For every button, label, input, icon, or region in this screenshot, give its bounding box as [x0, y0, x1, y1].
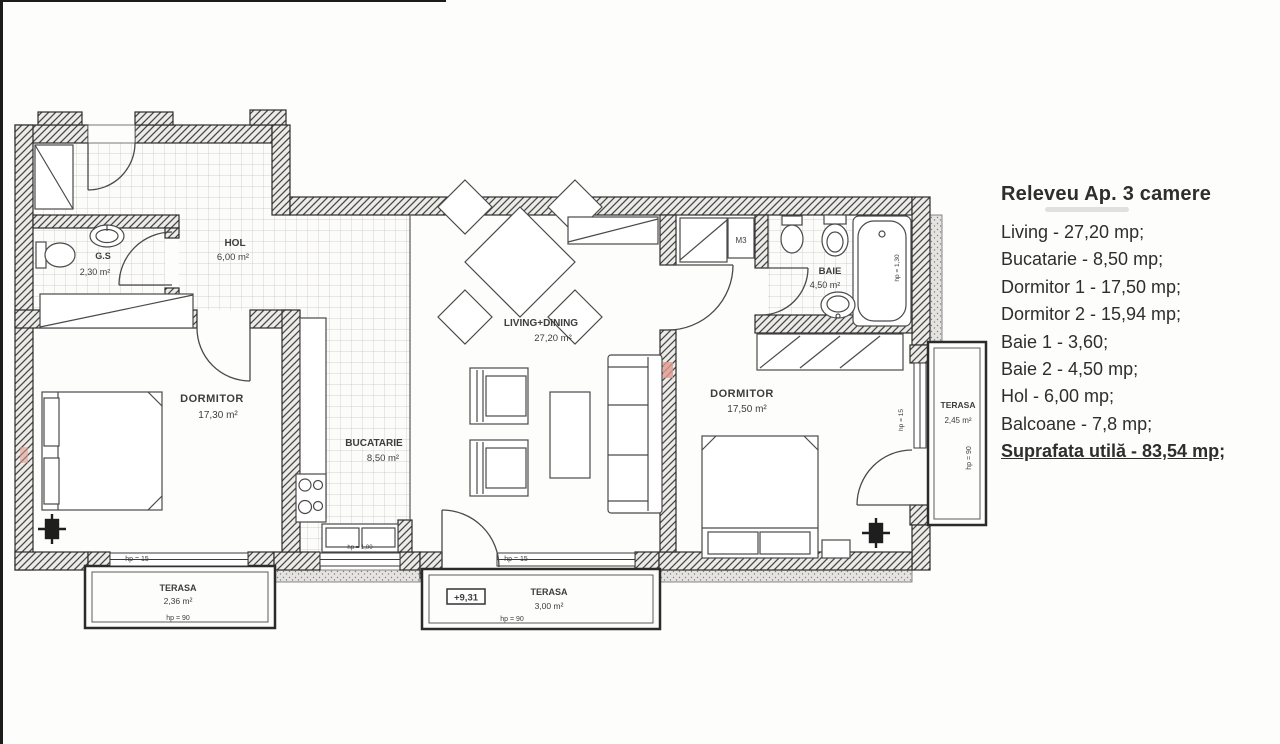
- annotation-hp90-terasa-right: hp = 90: [966, 446, 973, 470]
- wall-left: [15, 125, 33, 570]
- baie-bathtub: [853, 216, 911, 326]
- wall-step: [272, 125, 290, 215]
- door-living-terasa: [442, 510, 499, 567]
- wardrobe-dormitor2: [757, 334, 903, 370]
- red-marker-1: [663, 362, 673, 378]
- room-area-gs: 2,30 m²: [80, 267, 111, 277]
- room-label-terasa-right: TERASA: [941, 400, 976, 410]
- annotation-m3: M3: [735, 236, 747, 245]
- dining-table: [465, 207, 575, 317]
- hol-floor-2: [272, 215, 410, 310]
- baie-bidet: [781, 216, 803, 253]
- room-area-dormitor2: 17,50 m²: [727, 404, 767, 415]
- door-dormitor2: [668, 265, 733, 330]
- room-label-dormitor1: DORMITOR: [180, 393, 244, 405]
- wall-baie-left-stub: [755, 215, 768, 268]
- wall-pillar-2: [135, 112, 173, 125]
- legend-item-baie2: Baie 2 - 4,50 mp;: [1001, 356, 1279, 383]
- baie-toilet: [822, 215, 848, 256]
- wall-bottom-b: [274, 552, 320, 570]
- room-area-terasa-center: 3,00 m²: [535, 601, 564, 611]
- bed-dormitor2: [702, 436, 818, 558]
- gs-sink: [90, 225, 124, 247]
- wall-top-left-b: [135, 125, 272, 143]
- wardrobe-dormitor1: [40, 294, 193, 328]
- window-kitchen: [320, 553, 400, 566]
- annotation-hp90-terasa-center: hp = 90: [500, 616, 524, 623]
- scanned-floor-plan-page: HOL 6,00 m² G.S 2,30 m² DORMITOR 17,30 m…: [0, 0, 1280, 744]
- terraces: [85, 342, 986, 629]
- room-area-terasa-right: 2,45 m²: [944, 416, 971, 425]
- wall-bottom-c: [400, 552, 420, 570]
- legend-item-bucatarie: Bucatarie - 8,50 mp;: [1001, 246, 1279, 273]
- room-area-hol: 6,00 m²: [217, 252, 249, 263]
- scan-smudge: [1045, 207, 1129, 212]
- area-legend: Releveu Ap. 3 camere Living - 27,20 mp; …: [1001, 183, 1279, 466]
- wardrobe-living: [568, 217, 658, 244]
- annotation-hp15-dormitor1: hp = 15: [125, 556, 149, 563]
- room-label-dormitor2: DORMITOR: [710, 388, 774, 400]
- wall-kitchen-stub: [398, 520, 412, 552]
- room-area-terasa-left: 2,36 m²: [164, 596, 193, 606]
- legend-title: Releveu Ap. 3 camere: [1001, 183, 1279, 206]
- red-marker-2: [20, 447, 28, 463]
- kitchen-stove: [296, 474, 326, 522]
- wall-living-dormitor2-stub: [660, 215, 676, 265]
- annotation-hp130-baie: hp = 1,30: [894, 254, 901, 282]
- wall-right-upper: [912, 197, 930, 345]
- annotation-hp15-living: hp = 15: [504, 556, 528, 563]
- room-label-terasa-center: TERASA: [530, 587, 568, 597]
- room-label-terasa-left: TERASA: [159, 583, 197, 593]
- room-area-dormitor1: 17,30 m²: [198, 410, 238, 421]
- wall-right-bottom: [912, 525, 930, 570]
- legend-item-living: Living - 27,20 mp;: [1001, 219, 1279, 246]
- closet-entry: [35, 145, 73, 209]
- radiator-dormitor2: [862, 518, 890, 548]
- room-area-bucatarie: 8,50 m²: [367, 453, 399, 464]
- coffee-table: [550, 392, 590, 478]
- door-dormitor2-terasa: [857, 450, 912, 505]
- hol-floor: [179, 143, 272, 310]
- annotation-hp100-kitchen: hp = 1,00: [347, 545, 373, 551]
- annotation-hp15-dormitor2: hp = 15: [898, 409, 905, 431]
- room-label-hol: HOL: [224, 238, 245, 249]
- window-dormitor2-terasa: [914, 363, 926, 448]
- bed-dormitor1: [42, 392, 162, 510]
- room-label-gs: G.S: [95, 251, 111, 261]
- room-label-bucatarie: BUCATARIE: [345, 438, 403, 449]
- wall-bottom-a: [15, 552, 88, 570]
- armchair-1: [470, 368, 528, 424]
- baie-sink: [821, 292, 855, 318]
- room-area-living: 27,20 m²: [534, 333, 572, 344]
- radiator-dormitor1: [38, 514, 66, 544]
- gs-toilet: [36, 242, 75, 268]
- room-label-baie: BAIE: [819, 266, 842, 277]
- room-area-baie: 4,50 m²: [810, 280, 841, 290]
- armchair-2: [470, 440, 528, 496]
- wall-gs-right-a: [165, 228, 179, 238]
- legend-total: Suprafata utilă - 83,54 mp;: [1001, 438, 1279, 465]
- scan-edge-left: [0, 0, 3, 744]
- legend-item-hol: Hol - 6,00 mp;: [1001, 383, 1279, 410]
- annotation-hp90-terasa-left: hp = 90: [166, 615, 190, 622]
- nightstand-dormitor2: [822, 540, 850, 558]
- scan-edge-top: [0, 0, 446, 2]
- door-dormitor1: [197, 328, 250, 381]
- legend-item-dormitor1: Dormitor 1 - 17,50 mp;: [1001, 274, 1279, 301]
- terasa-right-outline: [928, 342, 986, 525]
- wardrobe-nook: [680, 218, 727, 262]
- annotation-level: +9,31: [454, 593, 479, 604]
- legend-item-dormitor2: Dormitor 2 - 15,94 mp;: [1001, 301, 1279, 328]
- level-marker: +9,31: [447, 589, 485, 604]
- wall-pillar-1: [38, 112, 82, 125]
- legend-item-baie1: Baie 1 - 3,60;: [1001, 329, 1279, 356]
- wall-pillar-3: [250, 110, 286, 125]
- sofa: [608, 355, 662, 513]
- legend-item-balcoane: Balcoane - 7,8 mp;: [1001, 411, 1279, 438]
- room-label-living: LIVING+DINING: [504, 318, 578, 329]
